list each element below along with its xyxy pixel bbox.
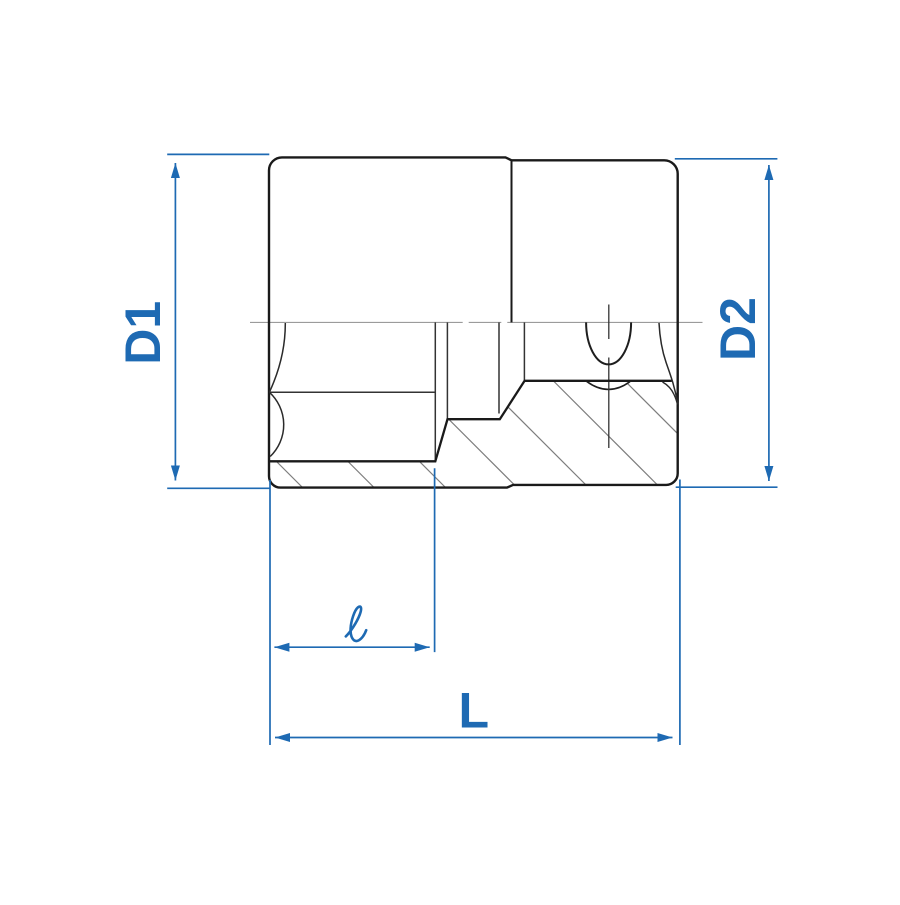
svg-text:D1: D1	[115, 301, 171, 365]
svg-text:D2: D2	[710, 297, 766, 361]
svg-text:L: L	[458, 683, 489, 739]
